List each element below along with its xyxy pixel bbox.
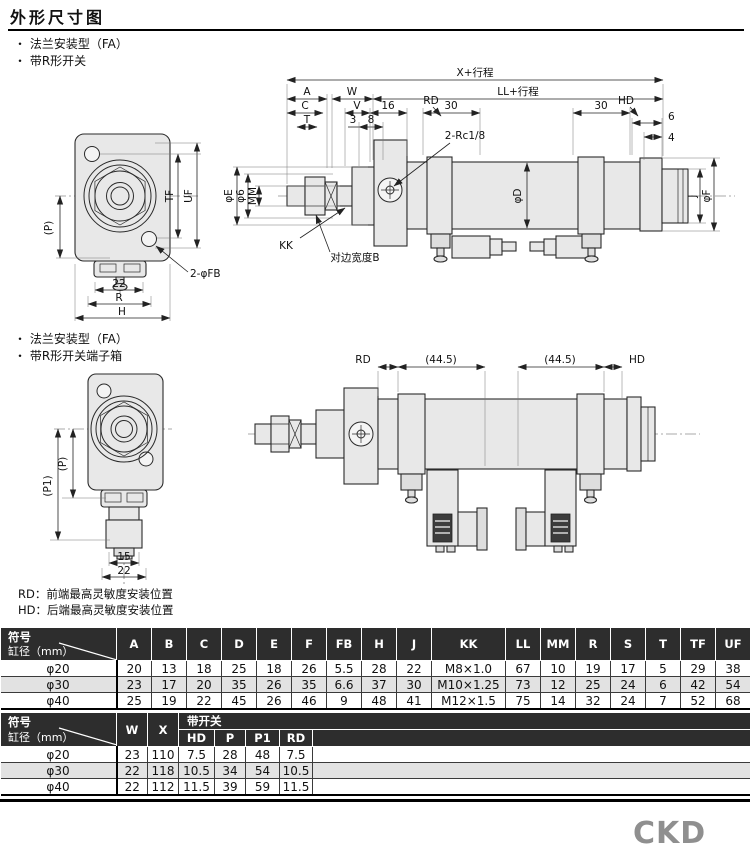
row-label-bore: φ40 — [1, 779, 117, 796]
empty-cell — [313, 763, 750, 779]
dimension-drawing-1: (P) TF UF 2-φFB 22 R H — [0, 55, 750, 340]
side-view-cylinder-terminal: RD (44.5) (44.5) HD — [248, 354, 700, 552]
col-header: C — [187, 628, 222, 661]
dim-cell: 10 — [541, 661, 576, 677]
dim-cell: 20 — [117, 661, 152, 677]
dim-cell: 30 — [397, 677, 432, 693]
col-header: KK — [432, 628, 506, 661]
switch-assembly — [431, 234, 516, 262]
dimension-table-1: 符号 缸径（mm） A B C D E F FB H J KK LL MM R … — [0, 627, 750, 710]
col-header: RD — [280, 730, 313, 747]
dim-cell: 26 — [257, 693, 292, 710]
dim-label-flats-b: 对边宽度B — [330, 251, 379, 264]
table-corner: 符号 缸径（mm） — [1, 713, 117, 747]
table-row: φ402211211.5395911.5 — [1, 779, 750, 796]
dim-cell: 10.5 — [179, 763, 215, 779]
dim-cell: 18 — [257, 661, 292, 677]
dim-cell: 22 — [397, 661, 432, 677]
col-header: TF — [681, 628, 716, 661]
dim-label-p1: (P1) — [42, 475, 54, 496]
dim-cell: 10.5 — [280, 763, 313, 779]
col-header: UF — [716, 628, 750, 661]
title-rule — [8, 29, 744, 31]
empty-cell — [313, 779, 750, 796]
dim-label-t: T — [303, 114, 311, 126]
col-header: B — [152, 628, 187, 661]
dim-cell: 52 — [681, 693, 716, 710]
dim-cell: 7.5 — [179, 747, 215, 763]
dimension-table-2: 符号 缸径（mm） W X 带开关 HD P P1 RD φ20231107.5… — [0, 712, 750, 796]
dim-cell: 7 — [646, 693, 681, 710]
dim-label-phi-e: φE — [223, 189, 235, 203]
col-header: MM — [541, 628, 576, 661]
dim-cell: M8×1.0 — [432, 661, 506, 677]
dim-label-6: 6 — [668, 111, 675, 123]
dim-cell: 11.5 — [280, 779, 313, 796]
switch-assembly — [530, 234, 601, 262]
dim-label-kk: KK — [279, 240, 294, 252]
dim-cell: 25 — [222, 661, 257, 677]
dim-label-rd: RD — [423, 95, 438, 107]
side-view-cylinder: X+行程 A W LL+行程 C V 16 RD 30 30 HD 6 4 T … — [223, 66, 735, 264]
dim-label-c: C — [301, 100, 308, 112]
dim-cell: 5.5 — [327, 661, 362, 677]
dim-cell: 23 — [117, 747, 148, 763]
dim-label-rd: RD — [355, 354, 370, 366]
col-header: E — [257, 628, 292, 661]
dim-label-4: 4 — [668, 132, 675, 144]
dim-cell: M12×1.5 — [432, 693, 506, 710]
dim-cell: 29 — [681, 661, 716, 677]
dim-label-hd: HD — [629, 354, 645, 366]
dim-label-w: W — [347, 86, 358, 98]
col-header: P1 — [246, 730, 280, 747]
dim-cell: 9 — [327, 693, 362, 710]
terminal-box-switch — [516, 470, 576, 552]
bullet-item: 法兰安装型（FA） — [14, 36, 128, 53]
dim-cell: 5 — [646, 661, 681, 677]
dim-label-a: A — [303, 86, 311, 98]
dim-cell: 12 — [541, 677, 576, 693]
col-header: D — [222, 628, 257, 661]
dim-cell: 118 — [148, 763, 179, 779]
dim-cell: 17 — [152, 677, 187, 693]
dim-cell: 46 — [292, 693, 327, 710]
note-hd: HD：后端最高灵敏度安装位置 — [18, 602, 174, 618]
dim-label-x-stroke: X+行程 — [457, 66, 494, 79]
dim-label-phi-d: φD — [512, 188, 524, 203]
dim-cell: 75 — [506, 693, 541, 710]
col-header: X — [148, 713, 179, 747]
catalog-page: 外形尺寸图 法兰安装型（FA） 带R形开关 — [0, 0, 750, 859]
dim-cell: 54 — [716, 677, 750, 693]
dim-cell: 48 — [246, 747, 280, 763]
dim-label-rc-port: 2-Rc1/8 — [445, 130, 485, 142]
group-header-switch: 带开关 — [179, 713, 750, 730]
dim-label-tf: TF — [164, 190, 176, 203]
dim-cell: 20 — [187, 677, 222, 693]
dim-cell: 112 — [148, 779, 179, 796]
empty-cell — [313, 747, 750, 763]
dim-cell: 6 — [646, 677, 681, 693]
dim-cell: 45 — [222, 693, 257, 710]
dim-cell: 24 — [611, 677, 646, 693]
dim-label-p: (P) — [43, 221, 55, 236]
dim-cell: 35 — [292, 677, 327, 693]
table-row: φ20231107.528487.5 — [1, 747, 750, 763]
dim-cell: 37 — [362, 677, 397, 693]
ckd-logo: CKD — [633, 816, 706, 851]
dim-cell: 24 — [611, 693, 646, 710]
row-label-bore: φ20 — [1, 747, 117, 763]
dim-label-hd: HD — [618, 95, 634, 107]
dim-cell: 25 — [576, 677, 611, 693]
col-header: H — [362, 628, 397, 661]
dim-label-16: 16 — [381, 100, 395, 112]
dim-cell: 14 — [541, 693, 576, 710]
dim-cell: 39 — [215, 779, 246, 796]
dim-cell: 73 — [506, 677, 541, 693]
table-row: φ202013182518265.52822M8×1.0671019175293… — [1, 661, 750, 677]
dim-cell: M10×1.25 — [432, 677, 506, 693]
dim-cell: 42 — [681, 677, 716, 693]
row-label-bore: φ40 — [1, 693, 117, 710]
dim-cell: 26 — [292, 661, 327, 677]
corner-diagonal — [1, 713, 117, 745]
dim-label-uf: UF — [183, 189, 195, 203]
dim-cell: 17 — [611, 661, 646, 677]
terminal-box-switch — [427, 470, 487, 552]
dim-cell: 54 — [246, 763, 280, 779]
dim-cell: 26 — [257, 677, 292, 693]
bottom-rule — [0, 799, 750, 802]
dim-label-22: 22 — [112, 278, 125, 290]
dim-label-22: 22 — [117, 565, 130, 577]
row-label-bore: φ30 — [1, 677, 117, 693]
dim-cell: 13 — [152, 661, 187, 677]
row-label-bore: φ30 — [1, 763, 117, 779]
dim-cell: 7.5 — [280, 747, 313, 763]
dim-cell: 35 — [222, 677, 257, 693]
switch-position-notes: RD：前端最高灵敏度安装位置 HD：后端最高灵敏度安装位置 — [18, 586, 174, 618]
dim-cell: 18 — [187, 661, 222, 677]
dim-label-mm: MM — [247, 187, 259, 205]
dim-label-30b: 30 — [594, 100, 607, 112]
col-header: HD — [179, 730, 215, 747]
col-header: LL — [506, 628, 541, 661]
dim-label-15: 15 — [117, 551, 130, 563]
dim-label-30a: 30 — [444, 100, 457, 112]
front-view-flange: (P) TF UF 2-φFB 22 R H — [43, 134, 221, 321]
table-corner: 符号 缸径（mm） — [1, 628, 117, 661]
front-view-terminal-box: (P) (P1) 15 22 — [42, 374, 172, 584]
dim-label-phi-6: φ6 — [235, 189, 247, 203]
col-header: P — [215, 730, 246, 747]
col-header: A — [117, 628, 152, 661]
dim-cell: 38 — [716, 661, 750, 677]
dim-label-r: R — [115, 292, 122, 304]
col-header: S — [611, 628, 646, 661]
dimension-drawing-2: (P) (P1) 15 22 — [0, 340, 750, 588]
dim-label-3: 3 — [350, 114, 357, 126]
dim-cell: 22 — [187, 693, 222, 710]
col-header: W — [117, 713, 148, 747]
table-row: φ4025192245264694841M12×1.57514322475268… — [1, 693, 750, 710]
dim-label-445a: (44.5) — [425, 354, 457, 366]
dim-cell: 68 — [716, 693, 750, 710]
dim-cell: 41 — [397, 693, 432, 710]
dim-label-phi-f: φF — [701, 190, 713, 203]
dim-label-p: (P) — [57, 457, 69, 472]
dim-label-fb: 2-φFB — [190, 268, 221, 280]
dim-label-v: V — [353, 100, 361, 112]
dim-label-8: 8 — [368, 114, 375, 126]
dim-cell: 32 — [576, 693, 611, 710]
dim-cell: 28 — [215, 747, 246, 763]
dim-cell: 22 — [117, 779, 148, 796]
col-header: T — [646, 628, 681, 661]
col-header: FB — [327, 628, 362, 661]
col-header-empty — [313, 730, 750, 747]
dim-cell: 48 — [362, 693, 397, 710]
dim-cell: 22 — [117, 763, 148, 779]
dim-cell: 110 — [148, 747, 179, 763]
note-rd: RD：前端最高灵敏度安装位置 — [18, 586, 174, 602]
dim-cell: 25 — [117, 693, 152, 710]
corner-diagonal — [1, 628, 117, 660]
dim-cell: 19 — [576, 661, 611, 677]
dim-cell: 23 — [117, 677, 152, 693]
row-label-bore: φ20 — [1, 661, 117, 677]
dim-cell: 59 — [246, 779, 280, 796]
dim-label-h: H — [118, 306, 126, 318]
dim-cell: 11.5 — [179, 779, 215, 796]
dim-label-445b: (44.5) — [544, 354, 576, 366]
dim-label-j: J — [687, 194, 699, 198]
col-header: F — [292, 628, 327, 661]
table-row: φ302211810.5345410.5 — [1, 763, 750, 779]
dim-cell: 28 — [362, 661, 397, 677]
page-title: 外形尺寸图 — [10, 4, 105, 28]
dim-cell: 34 — [215, 763, 246, 779]
col-header: J — [397, 628, 432, 661]
table-row: φ302317203526356.63730M10×1.257312252464… — [1, 677, 750, 693]
dim-label-ll-stroke: LL+行程 — [497, 85, 539, 98]
col-header: R — [576, 628, 611, 661]
dim-cell: 19 — [152, 693, 187, 710]
dim-cell: 67 — [506, 661, 541, 677]
dim-cell: 6.6 — [327, 677, 362, 693]
